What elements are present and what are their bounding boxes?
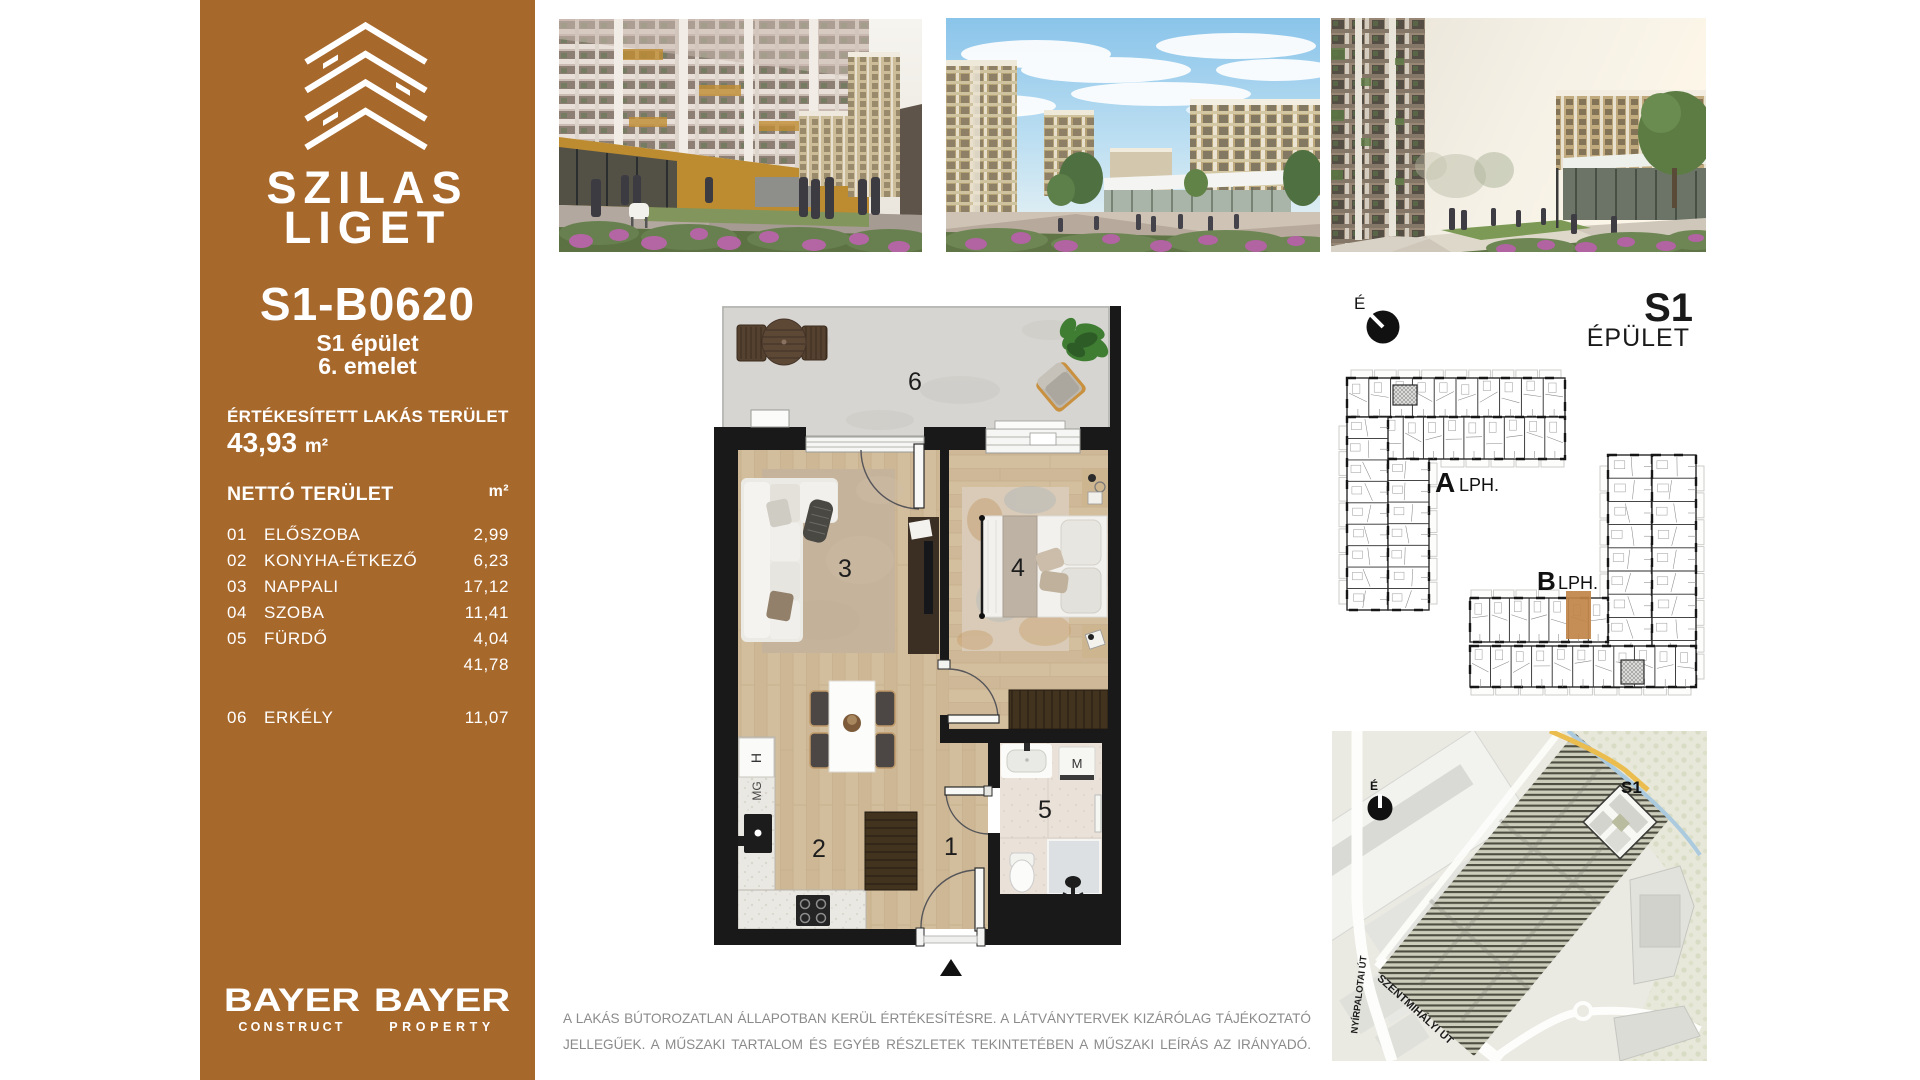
svg-text:1: 1	[944, 833, 958, 861]
svg-text:3: 3	[838, 555, 852, 583]
svg-text:5: 5	[1038, 796, 1052, 824]
svg-text:2: 2	[812, 835, 826, 863]
svg-text:S1: S1	[1621, 778, 1642, 797]
svg-text:É: É	[1370, 778, 1378, 793]
svg-text:MG: MG	[750, 781, 764, 800]
svg-text:6: 6	[908, 368, 922, 396]
svg-text:H: H	[748, 753, 764, 763]
svg-text:4: 4	[1011, 554, 1025, 582]
svg-text:É: É	[1354, 294, 1365, 313]
svg-text:A: A	[1435, 467, 1455, 498]
svg-text:LPH.: LPH.	[1558, 573, 1598, 593]
svg-text:ÉPÜLET: ÉPÜLET	[1587, 323, 1690, 352]
svg-text:LPH.: LPH.	[1459, 475, 1499, 495]
svg-text:B: B	[1537, 566, 1556, 596]
svg-text:M: M	[1072, 756, 1083, 771]
